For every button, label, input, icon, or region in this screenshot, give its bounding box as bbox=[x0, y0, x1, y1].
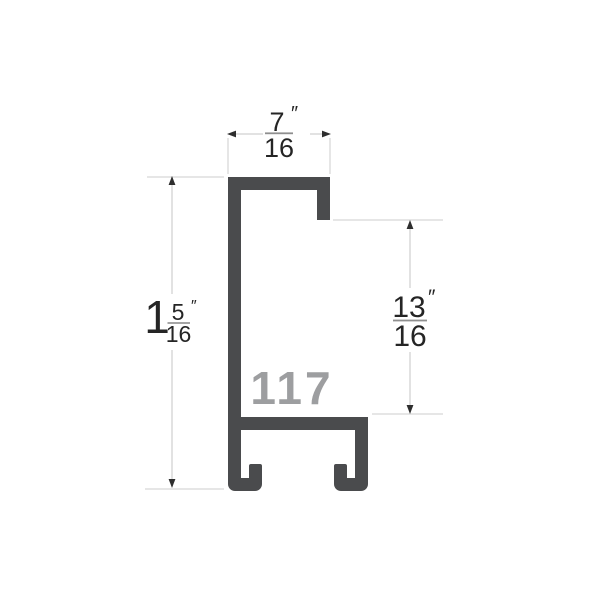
arrow-down-icon bbox=[169, 479, 176, 488]
top-dimension-unit: ″ bbox=[291, 103, 298, 125]
top-dimension-denominator: 16 bbox=[264, 133, 294, 163]
arrow-right-icon bbox=[322, 131, 331, 138]
right-dimension-denominator: 16 bbox=[393, 320, 426, 353]
dimension-right-depth: 13 16 ″ bbox=[333, 220, 443, 414]
profile-drawing-svg: 117 7 ″ 16 1 5 16 ″ bbox=[0, 0, 600, 600]
profile-cross-section-shape bbox=[228, 177, 368, 491]
dimension-top-width: 7 ″ 16 bbox=[227, 103, 331, 174]
left-dimension-unit: ″ bbox=[191, 298, 197, 315]
arrow-down-icon bbox=[407, 405, 414, 414]
moulding-profile-diagram: 117 7 ″ 16 1 5 16 ″ bbox=[0, 0, 600, 600]
arrow-up-icon bbox=[407, 220, 414, 229]
profile-number-label: 117 bbox=[250, 362, 333, 414]
left-dimension-denominator: 16 bbox=[166, 321, 192, 347]
arrow-left-icon bbox=[227, 131, 236, 138]
right-dimension-unit: ″ bbox=[428, 286, 436, 309]
dimension-left-height: 1 5 16 ″ bbox=[144, 176, 224, 489]
